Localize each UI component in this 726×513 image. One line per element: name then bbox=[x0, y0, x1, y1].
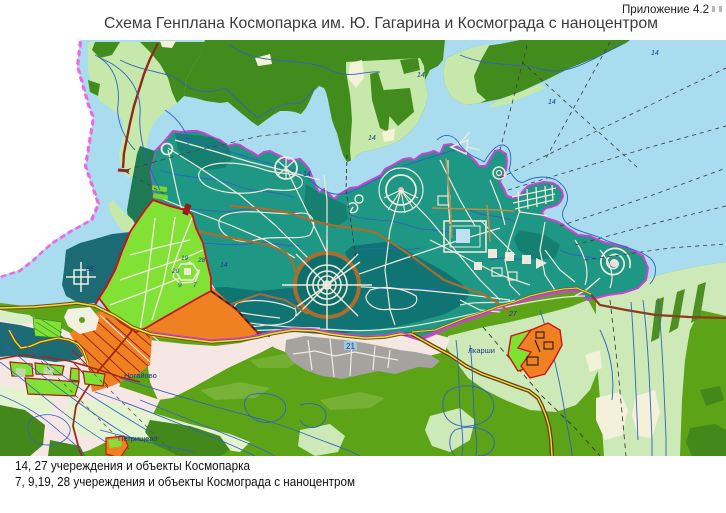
svg-text:14: 14 bbox=[417, 72, 425, 79]
svg-text:Ногайово: Ногайово bbox=[124, 371, 157, 380]
svg-text:86: 86 bbox=[86, 266, 94, 273]
svg-text:28: 28 bbox=[197, 257, 206, 264]
svg-text:27: 27 bbox=[508, 311, 518, 318]
svg-text:14: 14 bbox=[303, 171, 311, 178]
svg-text:Петрищево: Петрищево bbox=[118, 434, 157, 443]
svg-text:7, 9,19, 28 учереждения и объе: 7, 9,19, 28 учереждения и объекты Космог… bbox=[15, 475, 355, 489]
svg-text:Лкарши: Лкарши bbox=[468, 346, 495, 355]
svg-text:7: 7 bbox=[193, 282, 197, 289]
svg-text:Схема Генплана Космопарка им.: Схема Генплана Космопарка им. Ю. Гагарин… bbox=[104, 15, 658, 32]
svg-text:14: 14 bbox=[368, 135, 376, 142]
svg-text:14, 27 учереждения и объекты К: 14, 27 учереждения и объекты Космопарка bbox=[15, 459, 250, 473]
svg-text:14: 14 bbox=[651, 50, 659, 57]
svg-text:14: 14 bbox=[548, 99, 556, 106]
svg-text:9: 9 bbox=[178, 282, 182, 289]
svg-text:Приложение 4.2: Приложение 4.2 bbox=[622, 4, 709, 16]
svg-text:19: 19 bbox=[181, 255, 189, 262]
svg-text:21: 21 bbox=[346, 342, 355, 351]
svg-text:20: 20 bbox=[171, 268, 180, 275]
svg-text:14: 14 bbox=[220, 262, 228, 269]
